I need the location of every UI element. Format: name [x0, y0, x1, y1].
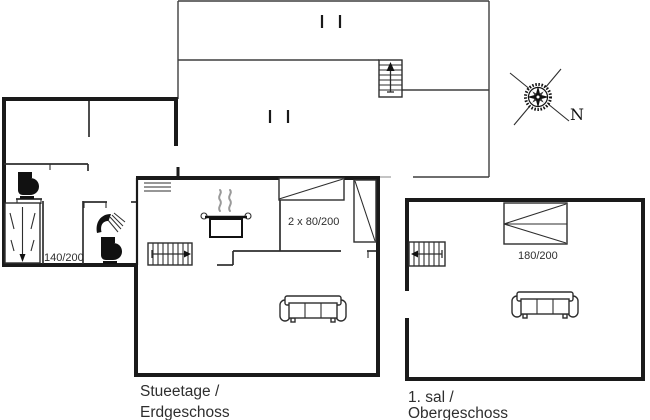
kitchen-counter-icon — [144, 183, 171, 191]
ground-floor-label-line1: Stueetage / — [140, 383, 220, 400]
stairs-icon-ground-floor — [148, 243, 192, 265]
steam-icon — [219, 190, 231, 211]
stairs-icon-exterior — [379, 60, 402, 97]
floor-plan-drawing: 140/200 — [0, 0, 650, 420]
bed-icon-twin-a — [279, 178, 344, 200]
bed-size-label-2x80: 2 x 80/200 — [288, 216, 339, 228]
compass-rose-icon — [510, 69, 569, 125]
floor-plan-page: 140/200 — [0, 0, 650, 420]
sofa-icon-ground — [280, 296, 346, 322]
bed-size-label-140: 140/200 — [44, 252, 84, 264]
ground-floor-label: Stueetage / Erdgeschoss — [140, 383, 230, 420]
toilet-icon — [101, 237, 122, 264]
main-room-exterior-walls — [134, 178, 380, 377]
toilet-icon — [18, 172, 39, 199]
post-marker-ticks — [270, 15, 340, 123]
north-label: N — [570, 105, 584, 124]
upper-floor-label-line1: 1. sal / — [408, 389, 454, 406]
stairs-icon-upper-floor — [409, 242, 445, 266]
carport-outline — [178, 1, 489, 177]
upper-floor-label-line2: Obergeschoss — [408, 405, 508, 420]
ground-floor-label-line2: Erdgeschoss — [140, 404, 230, 420]
bed-icon-double — [504, 203, 567, 244]
bed-size-label-180: 180/200 — [518, 250, 558, 262]
shower-icon — [97, 213, 125, 233]
bed-icon-twin-b — [354, 180, 376, 242]
sofa-icon-upper — [512, 292, 578, 318]
upper-floor-label: 1. sal / Obergeschoss — [408, 389, 508, 420]
cooking-pot-icon — [201, 190, 251, 237]
bed-icon-annex — [5, 203, 40, 263]
